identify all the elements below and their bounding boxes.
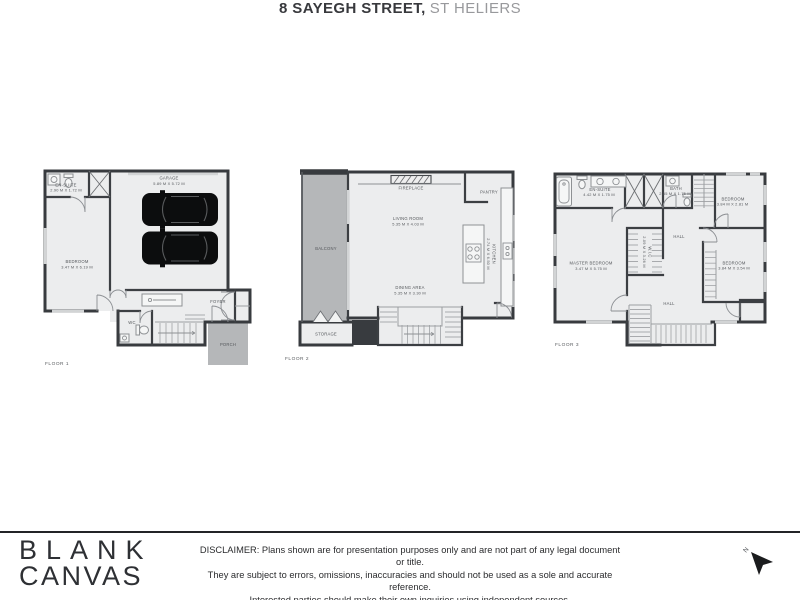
room-label-porch: PORCH <box>220 342 236 347</box>
window <box>764 272 767 292</box>
room-label-dining: DINING AREA <box>395 285 424 290</box>
window <box>586 321 612 324</box>
double-sink-icon <box>591 176 626 187</box>
room-dims-wic: 2.09 M X 3.26 M <box>642 236 647 268</box>
footer-divider <box>0 531 800 533</box>
floor-3-plan: EN-SUITE 4.42 M X 1.75 M BATH 2.55 M X 1… <box>554 173 767 348</box>
window <box>764 242 767 262</box>
north-arrow-icon: N <box>735 542 785 589</box>
toilet-icon <box>136 325 149 335</box>
kitchen-counter <box>501 188 513 306</box>
floor-2-plan: FIREPLACE PANTRY LIVING ROOM 5.35 M X 4.… <box>285 172 514 362</box>
room-dims-bedroom1: 3.84 M X 2.81 M <box>717 202 749 207</box>
kitchen-island <box>463 225 484 283</box>
window <box>715 321 737 324</box>
floor-1-plan: EN-SUITE 2.90 M X 1.72 M GARAGE 5.89 M X… <box>44 171 250 367</box>
disclaimer-line-3: Interested parties should make their own… <box>195 594 625 600</box>
room-label-hall-lower: HALL <box>663 301 675 306</box>
room-dims-kitchen: 2.74 M X 6.50 M <box>486 238 491 270</box>
window <box>554 234 557 256</box>
room-dims-living: 5.35 M X 4.03 M <box>392 222 424 227</box>
room-label-balcony: BALCONY <box>315 246 336 251</box>
room-dims-bath: 2.55 M X 1.75 M <box>659 191 691 196</box>
logo-line-2: CANVAS <box>19 563 153 589</box>
sink-icon <box>120 334 129 342</box>
disclaimer-line-2: They are subject to errors, omissions, i… <box>195 569 625 594</box>
vanity-icon <box>142 294 182 306</box>
room-label-wic: W.I.C <box>648 246 653 257</box>
room-label-fireplace: FIREPLACE <box>398 186 423 191</box>
car-icon <box>142 190 218 229</box>
floorplans-drawing: EN-SUITE 2.90 M X 1.72 M GARAGE 5.89 M X… <box>0 0 800 480</box>
page-title: 8 SAYEGH STREET,ST HELIERS <box>0 0 800 17</box>
floor-2-label: FLOOR 2 <box>285 356 309 362</box>
room-dims-ensuite: 2.90 M X 1.72 M <box>50 188 82 193</box>
room-label-master: MASTER BEDROOM <box>569 261 612 266</box>
room-dims-bedroom2: 3.84 M X 3.54 M <box>718 266 750 271</box>
room-label-garage: GARAGE <box>159 176 178 181</box>
window <box>44 228 47 264</box>
compass-n-label: N <box>742 546 751 554</box>
blank-canvas-logo: BLANK CANVAS <box>19 537 153 589</box>
sink-icon <box>666 176 679 186</box>
floor-1-label: FLOOR 1 <box>45 361 69 367</box>
room-label-hall-upper: HALL <box>673 234 685 239</box>
title-suburb: ST HELIERS <box>430 0 521 17</box>
wardrobe-shelves <box>705 250 716 299</box>
room-label-kitchen: KITCHEN <box>492 244 497 264</box>
room-label-storage: STORAGE <box>315 332 337 337</box>
room-dims-master: 3.47 M X 5.75 M <box>575 266 607 271</box>
room-dims-bedroom: 3.47 M X 6.19 M <box>61 265 93 270</box>
window <box>764 185 767 205</box>
window <box>726 173 746 176</box>
room-dims-garage: 5.89 M X 5.72 M <box>153 181 185 186</box>
room-label-living: LIVING ROOM <box>393 216 423 221</box>
room-label-foyer: FOYER <box>210 299 225 304</box>
window <box>554 266 557 288</box>
window <box>750 173 760 176</box>
window <box>52 310 84 313</box>
bathtub-icon <box>557 177 572 206</box>
floorplan-page: EN-SUITE 2.90 M X 1.72 M GARAGE 5.89 M X… <box>0 0 800 600</box>
title-address: 8 SAYEGH STREET, <box>279 0 426 17</box>
room-dims-ensuite: 4.42 M X 1.75 M <box>583 192 615 197</box>
disclaimer-text: DISCLAIMER: Plans shown are for presenta… <box>195 544 625 600</box>
logo-line-1: BLANK <box>19 537 153 563</box>
floor-3-label: FLOOR 3 <box>555 342 579 348</box>
room-dims-dining: 5.35 M X 3.30 M <box>394 291 426 296</box>
room-label-wc: WC <box>128 320 135 325</box>
room-label-pantry: PANTRY <box>480 190 498 195</box>
disclaimer-line-1: DISCLAIMER: Plans shown are for presenta… <box>195 544 625 569</box>
room-label-bedroom: BEDROOM <box>65 259 88 264</box>
